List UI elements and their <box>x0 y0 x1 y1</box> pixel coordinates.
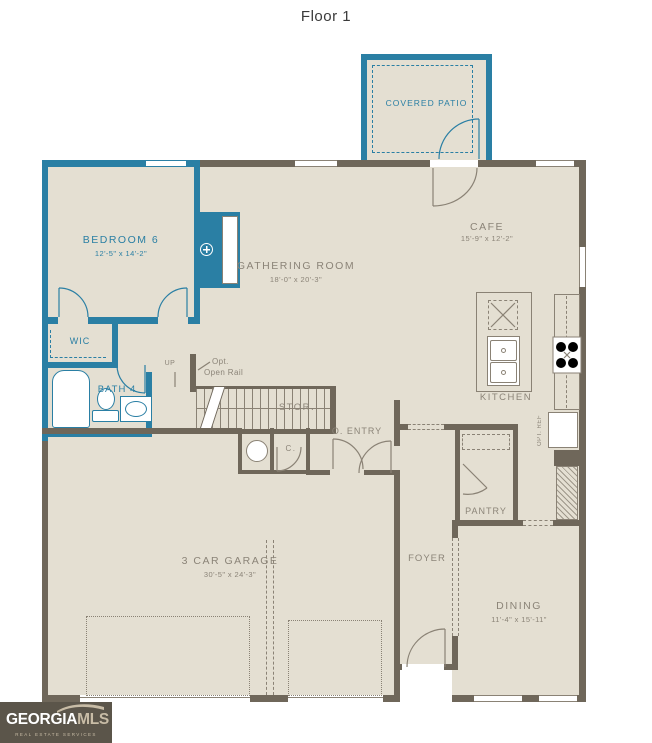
wall-segment <box>554 450 580 466</box>
garage-door-outline <box>86 616 250 696</box>
annotation-leader-line <box>196 358 212 372</box>
stairs-up-label: UP <box>160 360 180 367</box>
room-label-bedroom6: BEDROOM 6 <box>42 234 200 246</box>
room-label-bath4: BATH 4 <box>80 384 154 395</box>
room-label-garage: 3 CAR GARAGE <box>155 555 305 567</box>
room-label-kitchen: KITCHEN <box>460 392 552 403</box>
wall-segment <box>361 54 367 162</box>
wall-segment <box>452 526 458 538</box>
wall-segment <box>270 428 274 474</box>
wall-segment <box>42 160 48 441</box>
wall-segment <box>194 167 200 212</box>
room-label-o-entry: O. ENTRY <box>318 426 396 436</box>
wall-segment <box>486 54 492 162</box>
window <box>536 160 574 167</box>
logo-swoosh-icon <box>56 703 106 715</box>
wall-segment <box>579 160 586 702</box>
porch-area <box>400 670 452 697</box>
wall-segment <box>42 434 48 702</box>
wall-segment <box>306 428 310 474</box>
room-label-gathering: GATHERING ROOM <box>226 260 366 272</box>
drain-icon <box>501 370 506 375</box>
room-label-wic: WIC <box>42 336 118 346</box>
page-title: Floor 1 <box>0 8 652 25</box>
door-arc <box>432 167 478 207</box>
pantry-shelf-dashed <box>462 434 510 450</box>
door-arc <box>404 628 446 668</box>
door-arc <box>58 287 88 317</box>
room-dims-cafe: 15'-9" x 12'-2" <box>447 234 527 243</box>
window <box>539 695 577 702</box>
logo-tagline: REAL ESTATE SERVICES <box>4 732 108 737</box>
wall-segment <box>238 428 242 474</box>
opt-rail-annotation: Opt. <box>212 357 252 366</box>
room-label-cafe: CAFE <box>447 221 527 233</box>
door-arc <box>438 118 480 160</box>
room-dims-garage: 30'-5" x 24'-3" <box>155 570 305 579</box>
cooktop-icon <box>552 336 582 374</box>
drain-icon <box>501 348 506 353</box>
wall-segment <box>394 474 400 696</box>
door-opening <box>58 317 88 324</box>
room-dims-bedroom6: 12'-5" x 14'-2" <box>42 249 200 258</box>
wall-segment <box>194 160 586 167</box>
wall-segment <box>452 520 585 526</box>
floor-plan-page: Floor 1 COVERED PATIO BEDROOM 6 12'-5" x… <box>0 0 652 743</box>
room-label-foyer: FOYER <box>396 553 458 564</box>
room-label-dining: DINING <box>458 600 580 612</box>
wall-segment <box>42 428 242 434</box>
wall-segment <box>394 400 400 446</box>
garage-door-outline <box>288 620 382 696</box>
garage-door-opening <box>80 695 250 702</box>
window <box>146 160 186 167</box>
room-dims-dining: 11'-4" x 15'-11" <box>458 615 580 624</box>
georgia-mls-logo: GEORGIAMLS REAL ESTATE SERVICES <box>0 702 112 743</box>
door-arc <box>158 287 188 317</box>
door-opening <box>430 160 478 167</box>
wall-segment <box>361 54 492 60</box>
fireplace-symbol-icon <box>200 243 213 256</box>
toilet-icon <box>92 410 119 422</box>
opt-ref-label: OPT. REF <box>537 410 547 450</box>
room-label-covered-patio: COVERED PATIO <box>366 98 487 108</box>
cased-opening <box>408 424 444 430</box>
wall-segment <box>42 362 118 368</box>
stairs-up-arrow <box>172 372 178 388</box>
window <box>474 695 522 702</box>
dishwasher-x-icon <box>488 300 518 330</box>
door-arc <box>358 440 392 474</box>
door-arc <box>460 462 490 496</box>
room-label-stor: STOR. <box>262 402 332 413</box>
bathtub-icon <box>52 370 90 428</box>
hatched-chase <box>556 466 578 520</box>
room-dims-gathering: 18'-0" x 20'-3" <box>226 275 366 284</box>
opt-rail-annotation: Open Rail <box>204 368 264 377</box>
cased-opening <box>523 520 553 526</box>
opt-ref-box <box>548 412 578 448</box>
room-label-pantry: PANTRY <box>456 506 516 516</box>
garage-door-opening <box>288 695 383 702</box>
door-arc <box>276 446 302 472</box>
water-heater-icon <box>246 440 268 462</box>
tv-niche <box>222 216 238 284</box>
sink-icon <box>125 401 147 417</box>
window <box>295 160 337 167</box>
window <box>579 247 586 287</box>
wall-segment <box>458 424 518 430</box>
door-opening <box>158 317 188 324</box>
garage-bay-divider <box>266 540 274 695</box>
